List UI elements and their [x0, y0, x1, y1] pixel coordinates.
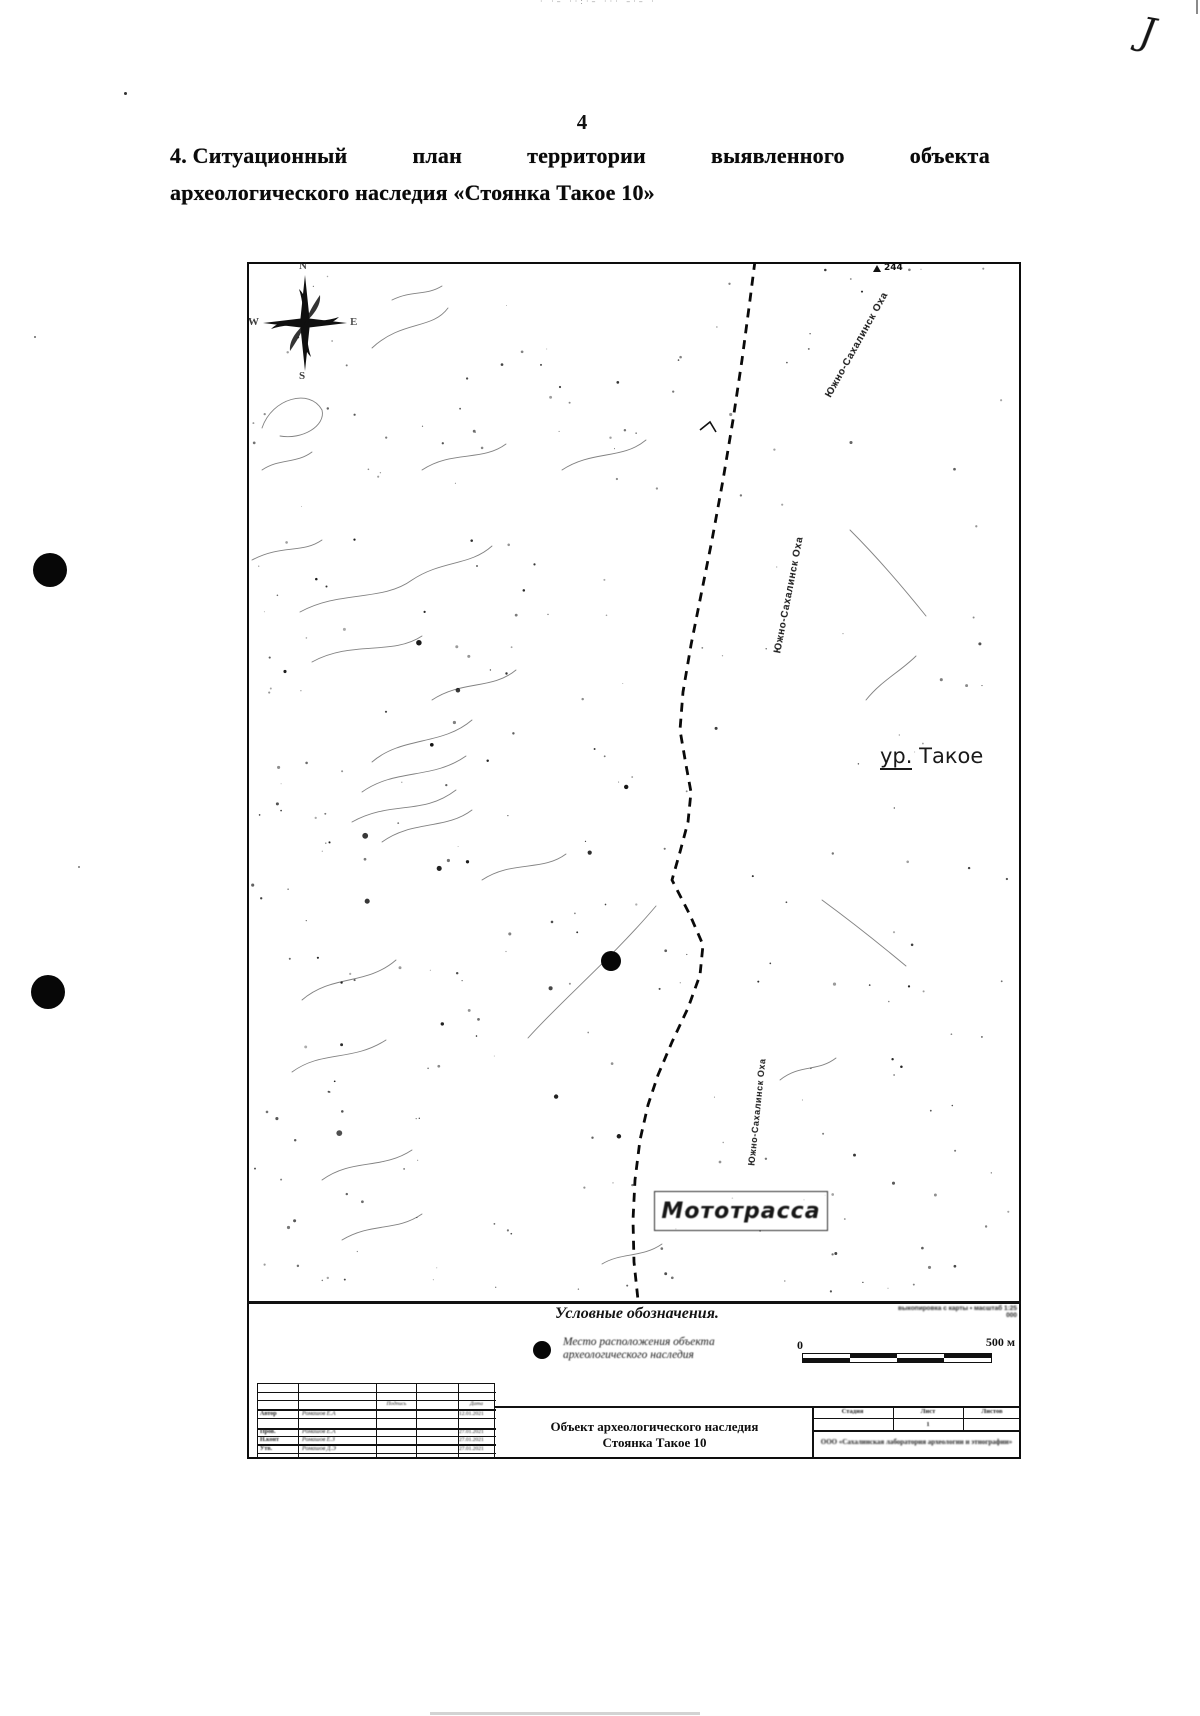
legend-item-line1: Место расположения объекта: [563, 1336, 715, 1349]
signature-row-date: 12.01.2021: [459, 1411, 494, 1417]
doc-title-line1: Объект археологического наследия: [497, 1419, 812, 1435]
hole-punch-top: [33, 553, 67, 587]
sheet-cell: Лист: [894, 1408, 962, 1415]
site-marker-dot: [601, 951, 621, 971]
handwritten-mark: J: [1136, 9, 1159, 55]
hole-punch-bottom: [31, 975, 65, 1009]
signature-row-date: 27.01.2021: [459, 1437, 494, 1443]
scale-bar: [802, 1353, 992, 1363]
area-label-name: Такое: [919, 744, 983, 768]
date-header: Дата: [459, 1401, 494, 1407]
signature-row-name: Ромашов Е.А: [302, 1429, 374, 1435]
heading-word: объекта: [910, 143, 990, 169]
signature-table: Подпись Дата Автор Ромашов Е.А 12.01.202…: [257, 1383, 495, 1458]
scan-speck: [124, 92, 127, 95]
document-heading-line2: археологического наследия «Стоянка Такое…: [170, 180, 990, 206]
area-label: ур. Такое: [880, 744, 983, 768]
signature-row-role: Пров.: [260, 1429, 296, 1435]
scan-speck: [78, 866, 80, 868]
stage-cell: Стадия: [814, 1408, 891, 1415]
heading-word: план: [412, 143, 462, 169]
legend-title: Условные обозначения.: [555, 1305, 719, 1323]
signature-row-date: 27.01.2021: [459, 1429, 494, 1435]
legend-item-text: Место расположения объекта археологическ…: [563, 1336, 715, 1362]
area-label-prefix: ур.: [880, 744, 912, 770]
mototrack-label-box: Мототрасса: [654, 1191, 828, 1231]
top-edge-cutoff-text: · ·– ··:·– ··· –·– ·: [540, 0, 770, 5]
signature-row-name: Ромашов Е.А: [302, 1411, 374, 1417]
legend-item-line2: археологического наследия: [563, 1349, 715, 1362]
legend-marker-dot: [533, 1341, 551, 1359]
spot-elevation: 244: [873, 263, 903, 273]
scan-speck: [34, 336, 36, 338]
elevation-triangle-icon: [873, 265, 881, 272]
signature-row-role: Утв.: [260, 1446, 296, 1452]
compass-east-label: E: [350, 316, 357, 328]
signature-row-date: 27.01.2021: [459, 1446, 494, 1452]
organization-cell: ООО «Сахалинская лаборатория археологии …: [814, 1438, 1019, 1446]
scale-zero-label: 0: [797, 1338, 803, 1353]
doc-title-line2: Стоянка Такое 10: [497, 1435, 812, 1451]
sheets-cell: Листов: [964, 1408, 1020, 1415]
signature-row-role: Н.конт: [260, 1437, 296, 1443]
titleblock-divider: [812, 1430, 1021, 1432]
map-source-note: выкопировка с карты • масштаб 1:25 000: [895, 1305, 1017, 1319]
scanned-document-page: · ·– ··:·– ··· –·– · J 4 4. Ситуационный…: [0, 0, 1200, 1716]
map-frame: [247, 262, 1021, 1459]
compass-west-label: W: [248, 316, 259, 328]
compass-south-label: S: [299, 370, 305, 382]
right-edge-scan-line: [1196, 0, 1198, 14]
signature-row-role: Автор: [260, 1411, 296, 1417]
signature-row-name: Ромашов Д.Э: [302, 1446, 374, 1452]
bottom-edge-scan-band: [430, 1712, 700, 1715]
heading-word: выявленного: [711, 143, 845, 169]
elevation-value: 244: [884, 263, 903, 273]
legend-divider-line: [247, 1301, 1021, 1304]
document-heading-line1: 4. Ситуационный план территории выявленн…: [170, 143, 990, 169]
heading-word: 4. Ситуационный: [170, 143, 347, 169]
titleblock-divider: [812, 1418, 1021, 1419]
scale-end-label: 500 м: [960, 1335, 1015, 1350]
page-number: 4: [560, 110, 604, 135]
signature-row-name: Ромашов Е.З: [302, 1437, 374, 1443]
compass-north-label: N: [299, 260, 307, 272]
sheet-number-cell: 1: [894, 1421, 962, 1428]
titleblock-doc-title: Объект археологического наследия Стоянка…: [497, 1419, 812, 1451]
heading-word: территории: [527, 143, 646, 169]
signature-header: Подпись: [377, 1401, 416, 1407]
mototrack-label: Мототрасса: [661, 1199, 820, 1224]
